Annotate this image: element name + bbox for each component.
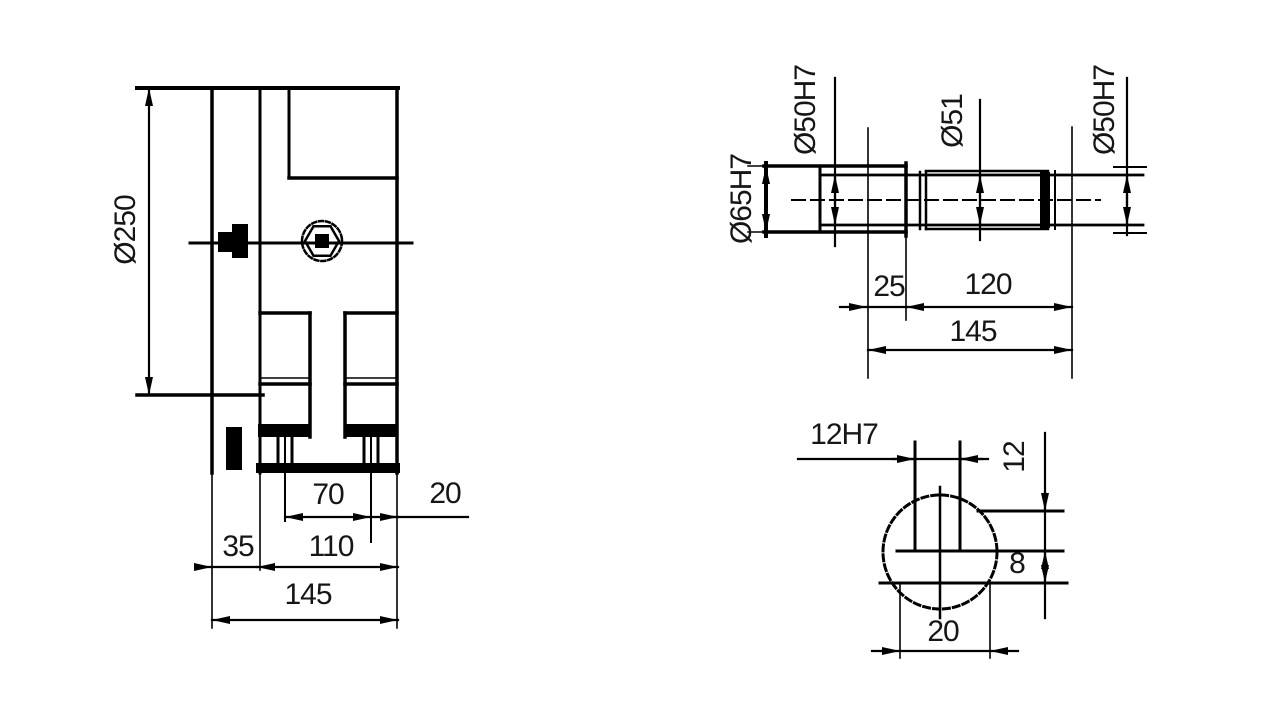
- dim-label-145-top: 145: [949, 315, 996, 348]
- dim-label-35: 35: [222, 530, 254, 563]
- dim-label-dia65: Ø65H7: [725, 154, 758, 244]
- section-view-dimensions: 12H7 12 8 20: [798, 418, 1045, 658]
- section-view-outline: [880, 442, 1067, 618]
- dim-label-145: 145: [284, 578, 331, 611]
- dim-label-120: 120: [964, 268, 1011, 301]
- dim-label-dia250: Ø250: [109, 195, 142, 265]
- front-view: Ø250 70 20 35 110 145: [109, 88, 468, 628]
- front-view-outline: [137, 88, 400, 473]
- dim-label-dia50-left: Ø50H7: [789, 65, 822, 155]
- dim-label-12h7: 12H7: [810, 418, 878, 451]
- dim-label-110: 110: [309, 530, 354, 563]
- dim-label-20-section: 20: [927, 615, 959, 648]
- dim-label-70: 70: [312, 478, 344, 511]
- dim-label-25: 25: [873, 270, 905, 303]
- side-plug-fitting: [218, 224, 248, 258]
- channel-bottom-left: [258, 424, 311, 437]
- dim-label-8: 8: [1009, 547, 1025, 580]
- top-view: Ø65H7 Ø50H7 Ø51 Ø50H7 25 120: [725, 65, 1146, 378]
- section-view: 12H7 12 8 20: [798, 418, 1067, 658]
- dim-label-dia51: Ø51: [936, 94, 969, 148]
- technical-drawing: Ø250 70 20 35 110 145: [0, 0, 1280, 720]
- drawing-canvas: Ø250 70 20 35 110 145: [0, 0, 1280, 720]
- dim-label-20: 20: [429, 477, 461, 510]
- channel-bottom-right: [344, 424, 398, 437]
- hex-plug-square: [315, 234, 329, 248]
- rib-section: [226, 427, 242, 470]
- hex-plug: [302, 221, 342, 261]
- dim-label-12: 12: [998, 441, 1031, 473]
- dim-label-dia50-right: Ø50H7: [1088, 65, 1121, 155]
